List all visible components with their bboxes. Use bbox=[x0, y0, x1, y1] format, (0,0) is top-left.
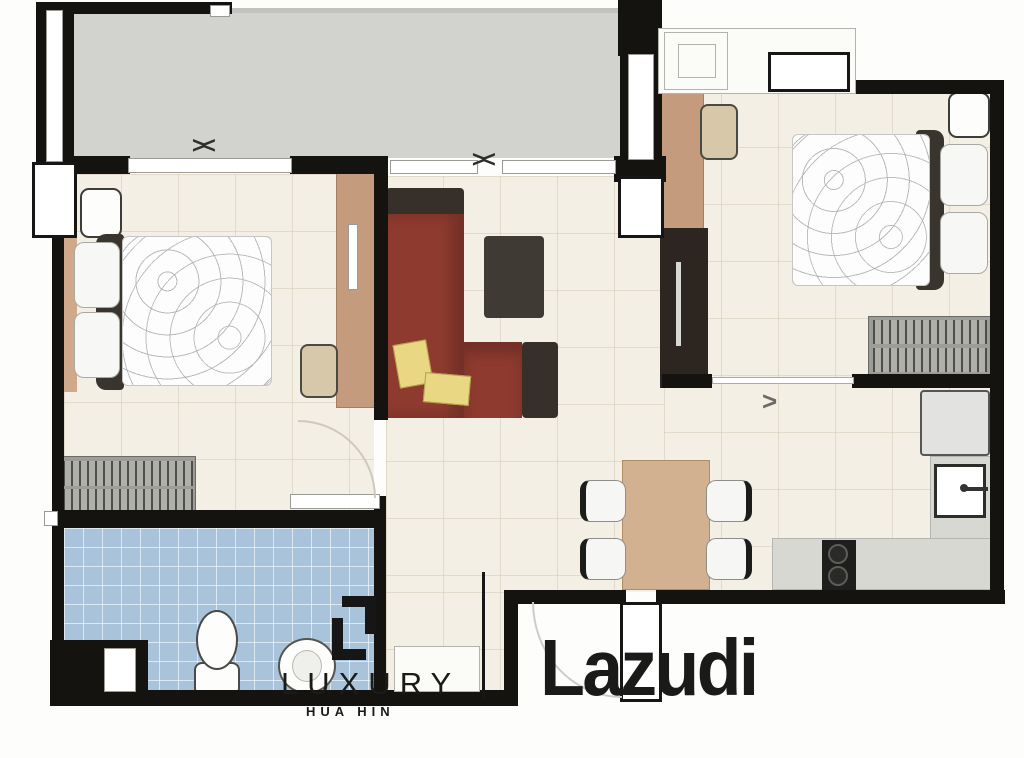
dining-table bbox=[622, 460, 710, 590]
bed-pillow bbox=[74, 312, 120, 378]
wall-vent bbox=[44, 511, 58, 526]
sofa-armrest bbox=[522, 342, 558, 418]
ac-unit bbox=[32, 162, 77, 238]
wardrobe bbox=[58, 456, 196, 518]
kitchen-counter bbox=[772, 538, 992, 590]
window bbox=[628, 54, 654, 160]
wall bbox=[36, 2, 46, 164]
sofa-chaise bbox=[464, 342, 522, 418]
balcony-sliding-door bbox=[128, 158, 292, 173]
cooktop bbox=[822, 540, 856, 590]
wall bbox=[990, 80, 1004, 604]
desk-monitor bbox=[348, 224, 358, 290]
utility-shaft bbox=[618, 176, 664, 238]
wall bbox=[852, 374, 1004, 388]
hanging-clothes bbox=[873, 320, 987, 344]
balcony-sliding-door bbox=[390, 160, 478, 174]
sofa-cushion bbox=[423, 372, 471, 406]
bed-pillow bbox=[940, 212, 988, 274]
balcony-sliding-door bbox=[502, 160, 616, 174]
refrigerator bbox=[920, 390, 990, 456]
window bbox=[46, 10, 63, 162]
bed-pillow bbox=[940, 144, 988, 206]
dining-chair bbox=[706, 538, 752, 580]
burner bbox=[828, 566, 848, 586]
hanging-clothes bbox=[873, 348, 987, 372]
wall bbox=[656, 590, 1005, 604]
dining-chair bbox=[580, 538, 626, 580]
wall bbox=[52, 236, 64, 646]
sink-faucet bbox=[960, 484, 968, 492]
ac-unit bbox=[768, 52, 850, 92]
hanging-clothes bbox=[63, 461, 193, 486]
desk-chair bbox=[300, 344, 338, 398]
balcony-floor bbox=[74, 10, 620, 158]
kitchen-sink bbox=[934, 464, 986, 518]
agency-location: HUA HIN bbox=[306, 705, 395, 718]
agency-name: LUXURY bbox=[281, 668, 460, 699]
door-swing-arrow: > bbox=[762, 386, 777, 417]
nightstand bbox=[948, 92, 990, 138]
bed-pillow bbox=[74, 242, 120, 308]
wall bbox=[662, 374, 712, 388]
dining-chair bbox=[706, 480, 752, 522]
sliding-door-symbol: >< bbox=[472, 146, 493, 173]
wardrobe bbox=[868, 316, 992, 376]
sliding-door-symbol: >< bbox=[192, 132, 213, 159]
balcony-railing bbox=[228, 8, 620, 13]
dining-chair bbox=[580, 480, 626, 522]
wall bbox=[52, 510, 386, 528]
double-bed bbox=[792, 134, 930, 286]
bedroom2-desk-chair bbox=[700, 104, 738, 160]
floor-plan: >< >< > LUXURY HUA HIN Lazudi bbox=[0, 0, 1024, 758]
luxury-logo-glyph bbox=[330, 596, 380, 662]
window-tick bbox=[210, 5, 230, 17]
wall bbox=[62, 8, 74, 164]
burner bbox=[828, 544, 848, 564]
wall bbox=[618, 0, 662, 56]
nightstand bbox=[80, 188, 122, 238]
wall bbox=[374, 158, 388, 420]
wall bbox=[852, 80, 1004, 94]
tv-cabinet bbox=[660, 228, 708, 388]
sink-faucet bbox=[966, 487, 988, 491]
double-bed bbox=[122, 236, 272, 386]
logo-shape bbox=[332, 618, 366, 660]
brand-watermark: Lazudi bbox=[540, 628, 757, 708]
wall bbox=[504, 590, 518, 706]
washing-machine-drum bbox=[678, 44, 716, 78]
coffee-table bbox=[484, 236, 544, 318]
service-niche bbox=[104, 648, 136, 692]
watermark-separator bbox=[482, 572, 485, 698]
toilet-bowl bbox=[196, 610, 238, 670]
bedroom2-door-leaf bbox=[712, 377, 854, 384]
cabinet-handle bbox=[676, 262, 681, 346]
